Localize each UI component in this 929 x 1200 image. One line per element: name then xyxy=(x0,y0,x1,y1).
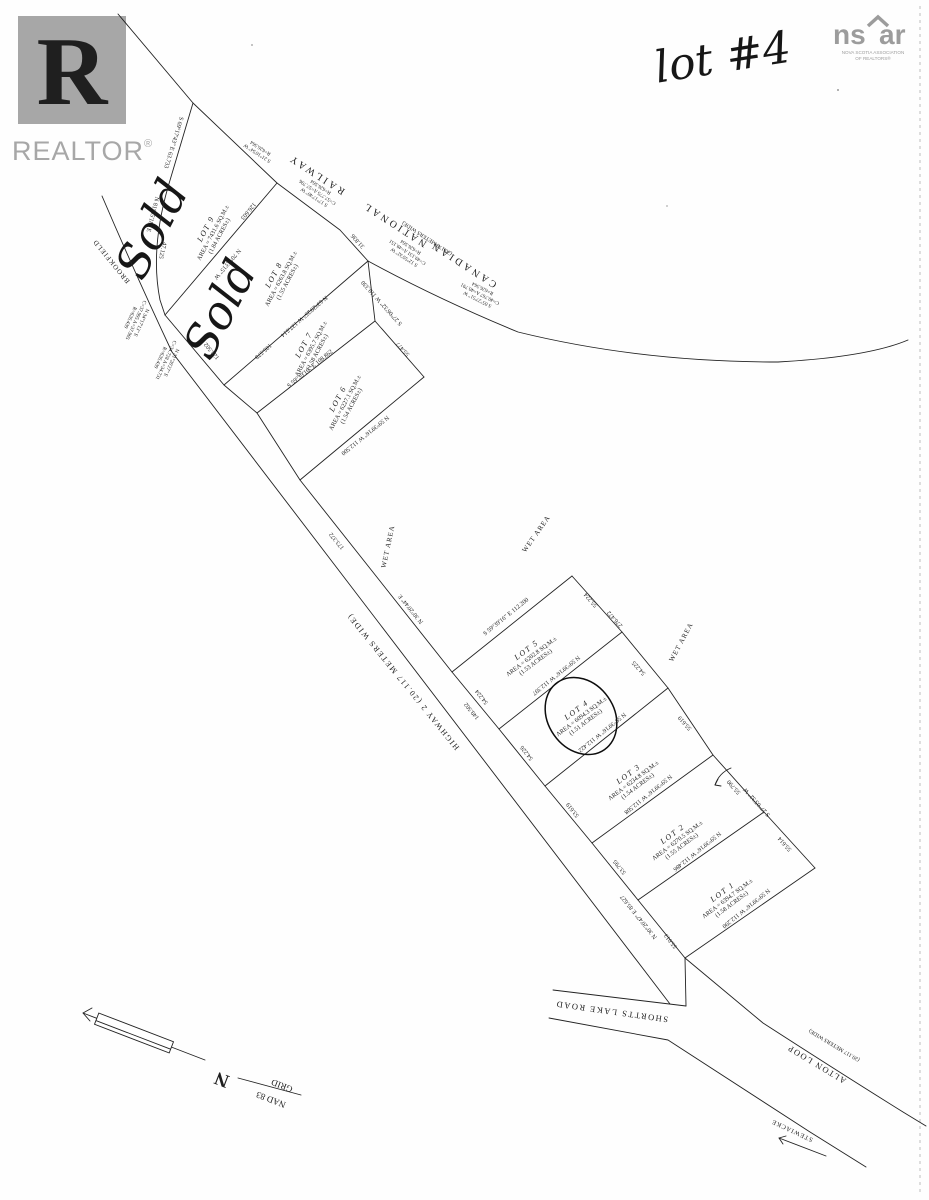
distance-55477: 55.477 xyxy=(395,340,412,357)
distance-105578: 105.578 xyxy=(253,342,273,360)
alton-loop-east-edge xyxy=(685,958,926,1126)
lot5-north-boundary xyxy=(452,576,572,672)
scan-speck xyxy=(251,44,253,46)
distance-54226: 54.226 xyxy=(519,744,535,762)
distance-53795: 53.795 xyxy=(612,858,628,876)
distance-55614: 55.614 xyxy=(777,835,794,852)
lot6-label: LOT 6AREA = 6227.1 SQ.M.±(1.54 ACRES±) xyxy=(319,369,369,435)
nsar-tagline-2: OF REALTORS® xyxy=(855,55,891,61)
distance-54224: 54.224 xyxy=(474,688,490,706)
lot9-label: LOT 9AREA = 7431.6 SQ.M.±(1.84 ACRES±) xyxy=(187,199,237,265)
distance-276472: 276.472 xyxy=(606,609,625,629)
curve-data-1: S 21°16'54" WR=626.564 xyxy=(242,137,275,165)
nsar-tagline-1: NOVA SCOTIA ASSOCIATION xyxy=(842,50,905,55)
lot2-label: LOT 2AREA = 6270.5 SQ.M.±(1.55 ACRES±) xyxy=(645,812,709,868)
north-arrow: N GRID NAD 83 xyxy=(83,1008,301,1110)
lot3-label: LOT 3AREA = 6234.8 SQ.M.±(1.54 ACRES±) xyxy=(601,752,665,808)
survey-plan-page: R REALTOR® ns ar NOVA SCOTIA ASSOCIATION… xyxy=(0,0,929,1200)
highway-east-edge xyxy=(165,315,686,1006)
distance-55619: 55.619 xyxy=(677,714,694,731)
distance-55790: 55.790 xyxy=(726,778,743,795)
bearing-s270632: S 27°06'32" W 119.330 xyxy=(360,279,404,327)
wet-area-label-3: WET AREA xyxy=(668,621,695,663)
realtor-wordmark: REALTOR® xyxy=(12,136,153,166)
distance-126603: 126.603 xyxy=(239,201,257,221)
nsar-ar: ar xyxy=(879,19,906,50)
bearing-lot5-north: S 59°39'16" E 112.200 xyxy=(482,596,530,637)
wet-area-label-2: WET AREA xyxy=(521,514,552,554)
bearing-s270532: S 27°05'32" W xyxy=(742,786,772,818)
curve-data-west-1: N 34°17'13" EC=37.995 A=37.905R=626.439 xyxy=(118,297,153,344)
alton-loop-width-note: (20.117 METERS WIDE) xyxy=(807,1027,861,1063)
nsar-ns: ns xyxy=(833,19,866,50)
handwritten-lot4-note: lot #4 xyxy=(651,22,794,94)
distance-53619: 53.619 xyxy=(565,801,581,819)
scan-speck xyxy=(837,89,839,91)
north-arrow-n: N xyxy=(212,1067,233,1092)
distance-54225: 54.225 xyxy=(631,659,648,676)
scan-speck xyxy=(666,205,668,207)
wet-area-label-1: WET AREA xyxy=(380,525,397,569)
nsar-logo: ns ar NOVA SCOTIA ASSOCIATION OF REALTOR… xyxy=(833,17,906,61)
distance-55013: 55.013 xyxy=(663,932,679,950)
shortts-lake-road-south-edge xyxy=(549,1018,866,1167)
highway-label: HIGHWAY 2 (20.117 METERS WIDE) xyxy=(345,611,461,752)
realtor-logo: R REALTOR® xyxy=(12,16,153,166)
distance-55224: 55.224 xyxy=(583,591,600,608)
distance-31836: 31.836 xyxy=(350,232,367,249)
north-datum-label: NAD 83 xyxy=(254,1089,287,1110)
shortts-lake-road-label: SHORTTS LAKE ROAD xyxy=(555,999,669,1025)
realtor-logo-r: R xyxy=(37,18,109,126)
north-grid-label: GRID xyxy=(269,1077,294,1094)
lot1-label: LOT 1AREA = 6394.7 SQ.M.±(1.58 ACRES±) xyxy=(695,870,759,926)
survey-plan-drawing: R REALTOR® ns ar NOVA SCOTIA ASSOCIATION… xyxy=(0,0,929,1200)
